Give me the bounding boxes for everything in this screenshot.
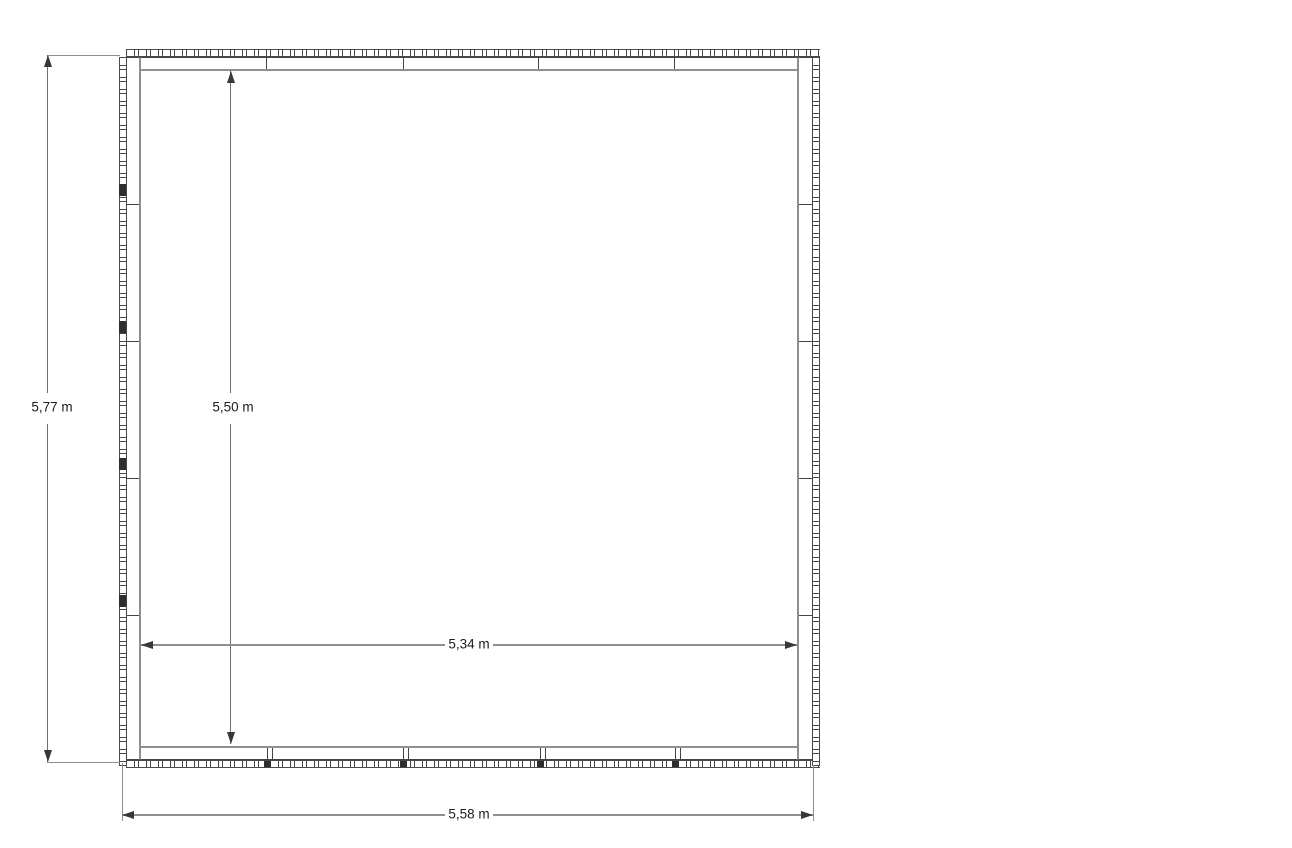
dimension-line <box>141 644 445 646</box>
dimension-line <box>47 424 48 762</box>
panel-joint <box>799 204 812 205</box>
panel-joint <box>540 748 541 759</box>
arrowhead-right-icon <box>801 811 813 819</box>
connector-mark <box>537 761 544 767</box>
arrowhead-down-icon <box>44 750 52 762</box>
panel-joint <box>127 204 139 205</box>
panel-joint <box>267 748 268 759</box>
arrowhead-left-icon <box>141 641 153 649</box>
connector-mark <box>119 595 126 607</box>
panel-joint <box>799 615 812 616</box>
arrowhead-down-icon <box>227 732 235 744</box>
panel-joint <box>408 748 409 759</box>
panel-joint <box>538 58 539 69</box>
connector-mark <box>264 761 271 767</box>
extension-line <box>47 55 120 56</box>
dimension-line <box>230 71 231 393</box>
dimension-line <box>493 644 797 646</box>
dimension-label: 5,50 m <box>209 401 256 416</box>
wall-panel-band-top <box>126 57 813 71</box>
dimension-label: 5,34 m <box>445 638 492 653</box>
dimension-label: 5,58 m <box>445 808 492 823</box>
wall-panel-band-right <box>797 57 813 760</box>
panel-joint <box>674 58 675 69</box>
panel-joint <box>272 748 273 759</box>
dimension-line <box>122 814 445 816</box>
panel-joint <box>127 478 139 479</box>
connector-mark <box>119 321 126 333</box>
connector-mark <box>119 184 126 196</box>
dimension-label: 5,77 m <box>28 401 75 416</box>
panel-joint <box>127 615 139 616</box>
floor-plan-drawing: 5,77 m 5,50 m 5,34 m 5,58 m <box>0 0 1292 848</box>
panel-joint <box>799 341 812 342</box>
panel-joint <box>799 478 812 479</box>
wall-panel-band-bottom <box>126 746 813 760</box>
wall-cladding-top <box>126 49 820 57</box>
arrowhead-up-icon <box>227 71 235 83</box>
wall-cladding-right <box>812 57 820 766</box>
dimension-line <box>47 55 48 393</box>
panel-joint <box>127 341 139 342</box>
wall-panel-band-left <box>126 57 141 760</box>
arrowhead-left-icon <box>122 811 134 819</box>
connector-mark <box>400 761 407 767</box>
arrowhead-right-icon <box>785 641 797 649</box>
extension-line <box>813 765 814 821</box>
panel-joint <box>266 58 267 69</box>
dimension-line <box>230 424 231 744</box>
panel-joint <box>675 748 676 759</box>
dimension-line <box>493 814 813 816</box>
panel-joint <box>545 748 546 759</box>
connector-mark <box>672 761 679 767</box>
panel-joint <box>403 58 404 69</box>
arrowhead-up-icon <box>44 55 52 67</box>
wall-cladding-bottom <box>126 760 820 768</box>
panel-joint <box>403 748 404 759</box>
extension-line <box>47 762 120 763</box>
connector-mark <box>119 458 126 470</box>
panel-joint <box>680 748 681 759</box>
